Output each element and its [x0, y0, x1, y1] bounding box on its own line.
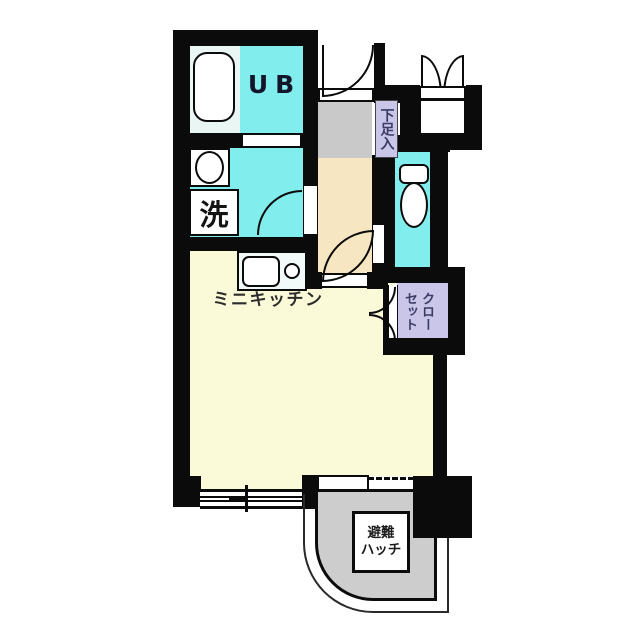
escape-hatch-label: 避難 ハッチ	[352, 511, 410, 573]
bathtub	[193, 52, 235, 122]
wall	[173, 30, 317, 46]
balcony-door	[317, 475, 369, 491]
wall	[400, 85, 419, 135]
unit-bath-door-opening	[243, 133, 300, 148]
wall	[433, 341, 447, 477]
laundry-room-label: 洗	[191, 193, 237, 233]
wall	[173, 30, 190, 480]
wall	[173, 237, 318, 251]
mini-kitchen-label: ミニキッチン	[196, 284, 340, 310]
shoe-cabinet-label: 下足入	[375, 100, 398, 158]
entrance-mat	[318, 100, 372, 158]
wall	[419, 133, 482, 150]
stove-burner	[284, 263, 300, 279]
floor-plan: 避難 ハッチ 下足入 UB 洗 ミニキッチン クロー セット	[0, 0, 640, 640]
unit-bath-label: UB	[238, 66, 304, 102]
toilet-tank	[399, 164, 429, 184]
kitchen-sink	[242, 256, 280, 287]
wall	[385, 145, 395, 270]
wall	[448, 267, 465, 355]
pillar	[413, 476, 472, 538]
balcony-opening-dashed	[368, 477, 414, 480]
laundry-door-opening	[303, 186, 318, 234]
toilet-bowl	[400, 182, 428, 228]
window-inner-lines	[200, 496, 302, 502]
meter-box	[419, 99, 466, 135]
meter-box-top	[419, 86, 466, 100]
laundry-sink-bowl	[195, 151, 224, 184]
closet-label: クロー セット	[399, 284, 437, 338]
window	[200, 489, 302, 509]
wall	[383, 267, 450, 283]
wall	[430, 135, 448, 270]
window-sash-tick	[229, 497, 246, 500]
wall	[173, 476, 201, 507]
